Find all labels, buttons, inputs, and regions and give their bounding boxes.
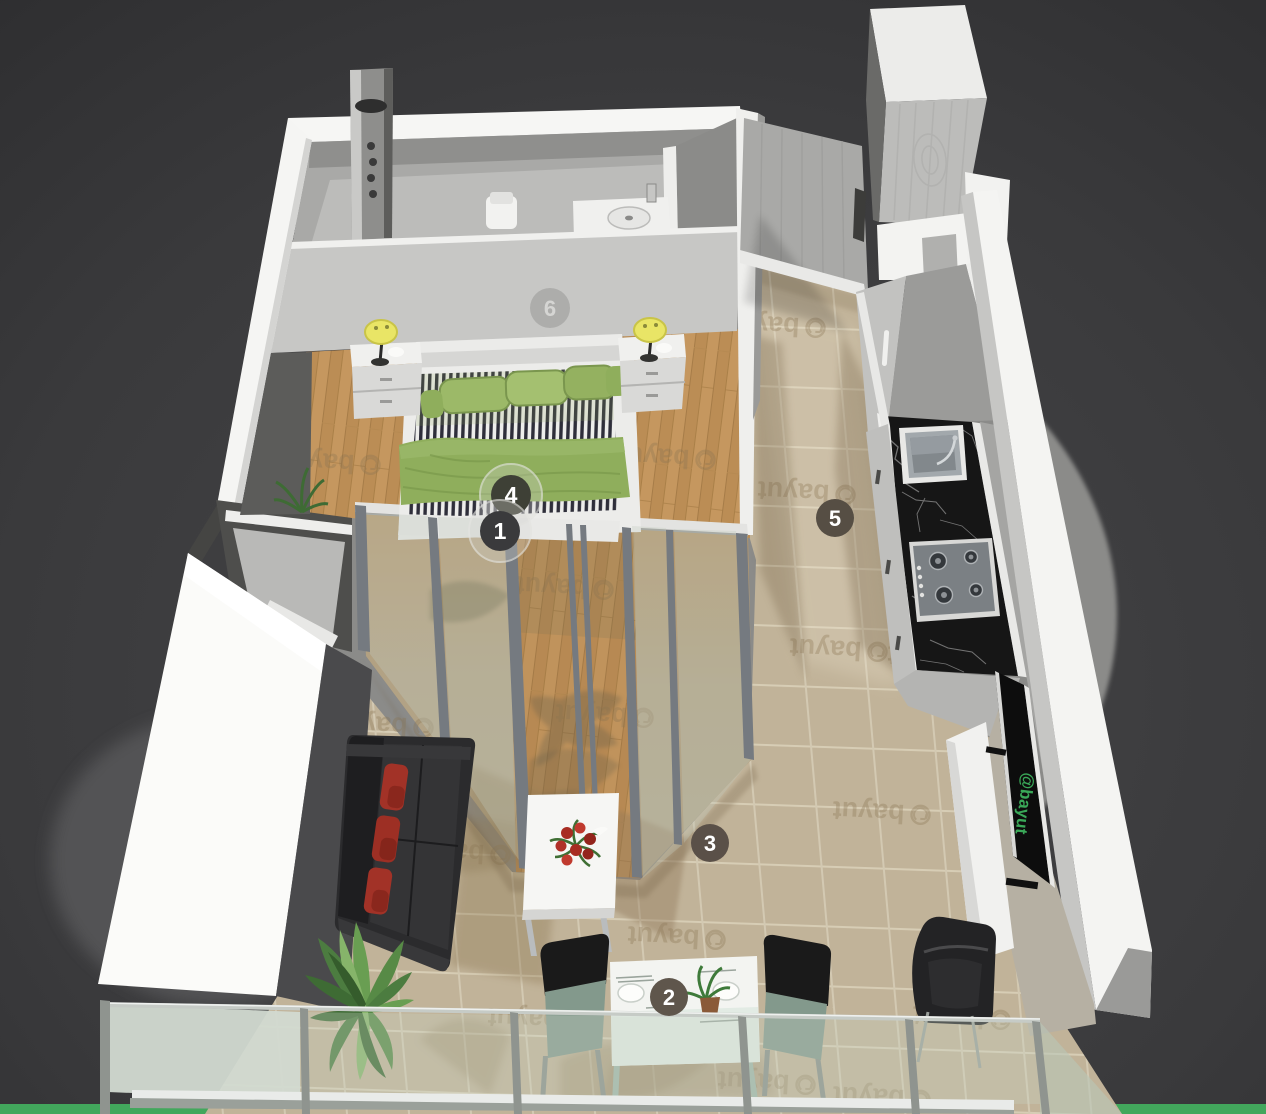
svg-text:6: 6 bbox=[544, 296, 556, 321]
svg-text:2: 2 bbox=[663, 985, 675, 1010]
svg-text:1: 1 bbox=[494, 518, 507, 544]
svg-text:3: 3 bbox=[704, 831, 716, 856]
svg-text:5: 5 bbox=[829, 506, 841, 531]
